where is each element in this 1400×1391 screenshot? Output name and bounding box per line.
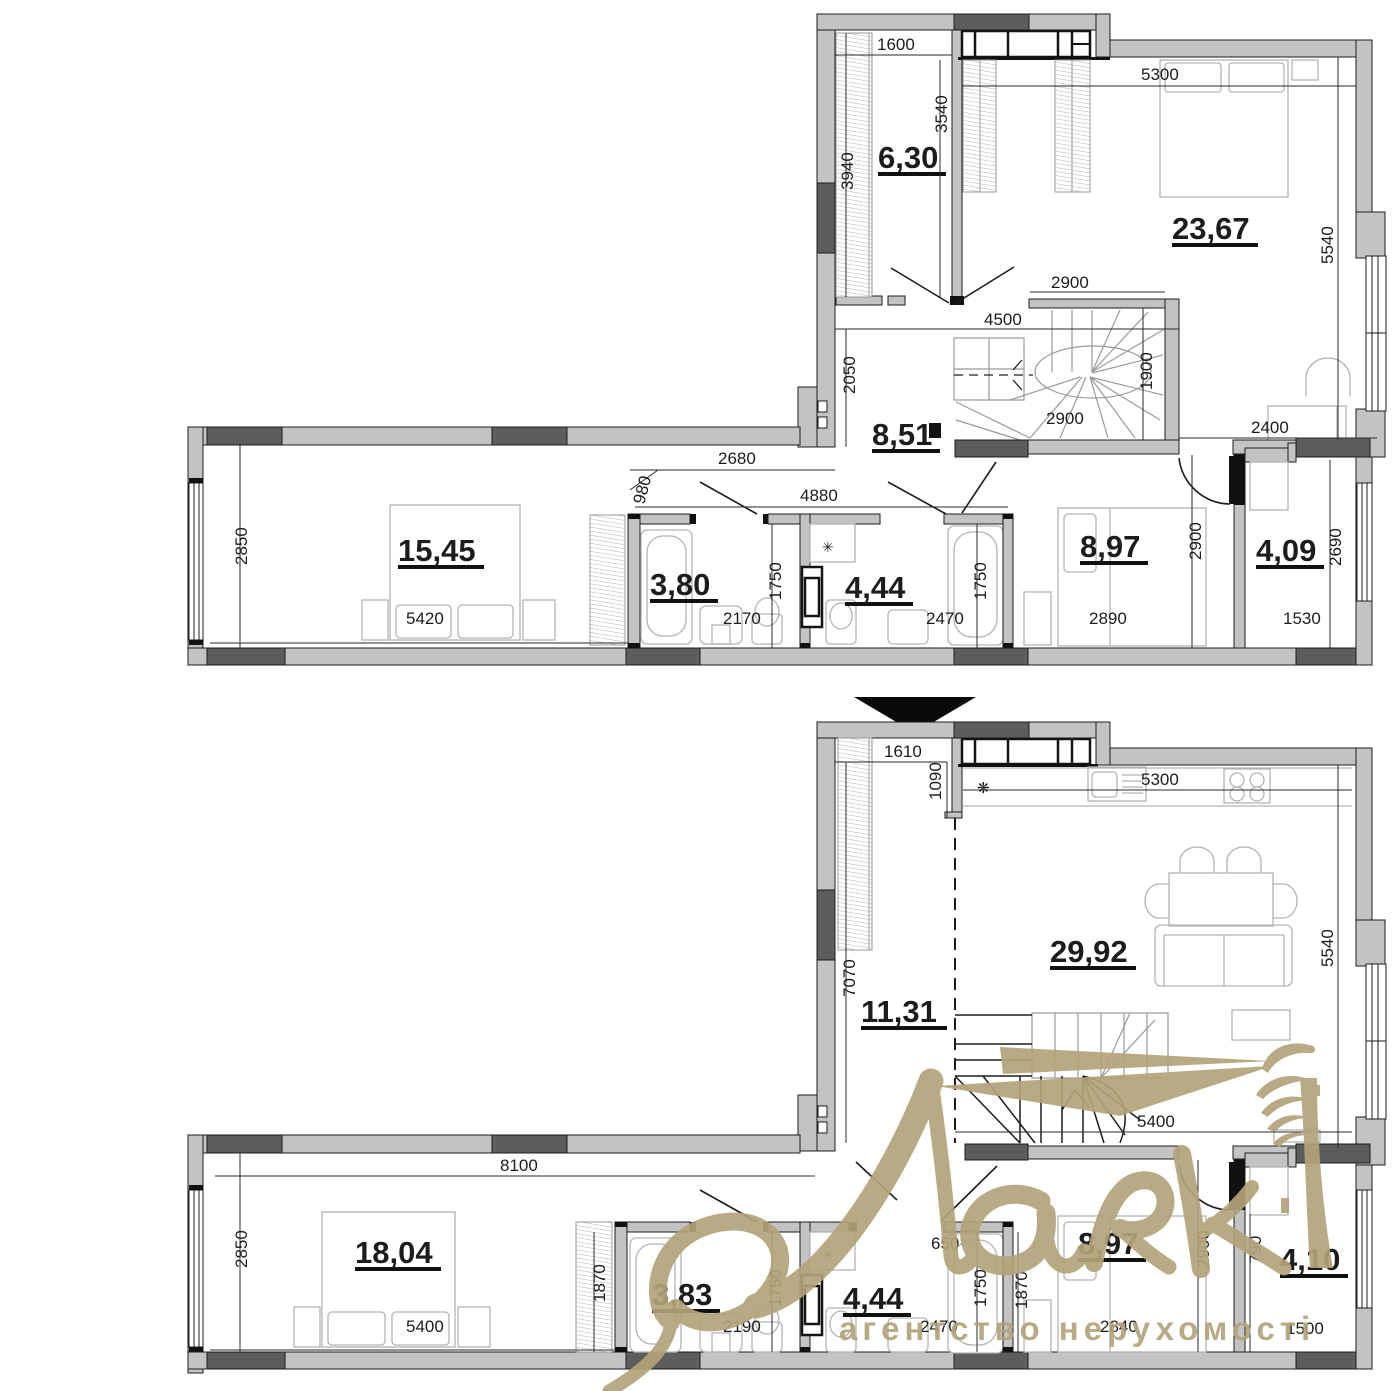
svg-text:4,09: 4,09 <box>1256 533 1316 568</box>
svg-text:5400: 5400 <box>1137 1112 1175 1131</box>
svg-text:3,80: 3,80 <box>650 567 710 602</box>
svg-text:1870: 1870 <box>590 1264 609 1302</box>
svg-text:18,04: 18,04 <box>355 1235 433 1270</box>
svg-text:2680: 2680 <box>718 449 756 468</box>
svg-text:11,31: 11,31 <box>861 994 937 1029</box>
svg-text:8,97: 8,97 <box>1080 529 1140 564</box>
svg-text:3940: 3940 <box>838 152 857 190</box>
svg-text:2850: 2850 <box>232 527 251 565</box>
svg-text:2050: 2050 <box>840 356 859 394</box>
svg-text:1870: 1870 <box>1012 1271 1031 1309</box>
svg-text:5420: 5420 <box>406 609 444 628</box>
svg-text:7070: 7070 <box>840 959 859 997</box>
svg-text:8100: 8100 <box>500 1156 538 1175</box>
svg-text:1610: 1610 <box>884 742 922 761</box>
svg-text:5540: 5540 <box>1318 226 1337 264</box>
svg-text:6,30: 6,30 <box>878 140 938 175</box>
svg-text:1750: 1750 <box>971 562 990 600</box>
svg-text:4,44: 4,44 <box>845 570 906 605</box>
svg-text:1600: 1600 <box>877 35 915 54</box>
svg-text:2900: 2900 <box>1051 273 1089 292</box>
svg-text:5400: 5400 <box>406 1317 444 1336</box>
svg-text:агентство нерухомості: агентство нерухомості <box>839 1310 1315 1347</box>
svg-text:2690: 2690 <box>1326 528 1345 566</box>
svg-text:2170: 2170 <box>723 609 761 628</box>
svg-text:2470: 2470 <box>926 609 964 628</box>
svg-text:❋: ❋ <box>977 780 990 797</box>
svg-text:2900: 2900 <box>1046 409 1084 428</box>
svg-text:2900: 2900 <box>1186 522 1205 560</box>
svg-text:1750: 1750 <box>766 562 785 600</box>
svg-text:1750: 1750 <box>971 1269 990 1307</box>
svg-text:2400: 2400 <box>1251 418 1289 437</box>
svg-text:15,45: 15,45 <box>398 533 476 568</box>
svg-text:5300: 5300 <box>1141 65 1179 84</box>
svg-text:980: 980 <box>630 474 656 506</box>
svg-text:5540: 5540 <box>1318 929 1337 967</box>
svg-text:4500: 4500 <box>984 310 1022 329</box>
svg-text:1530: 1530 <box>1283 609 1321 628</box>
svg-text:8,51: 8,51 <box>872 417 932 452</box>
svg-text:1090: 1090 <box>926 762 945 800</box>
svg-text:3540: 3540 <box>932 95 951 133</box>
svg-text:✳: ✳ <box>822 539 834 555</box>
svg-text:2890: 2890 <box>1089 609 1127 628</box>
svg-text:1900: 1900 <box>1137 352 1156 390</box>
svg-text:2850: 2850 <box>232 1230 251 1268</box>
svg-text:29,92: 29,92 <box>1050 934 1128 969</box>
svg-text:5300: 5300 <box>1141 770 1179 789</box>
svg-text:4880: 4880 <box>800 486 838 505</box>
svg-text:23,67: 23,67 <box>1172 211 1250 246</box>
